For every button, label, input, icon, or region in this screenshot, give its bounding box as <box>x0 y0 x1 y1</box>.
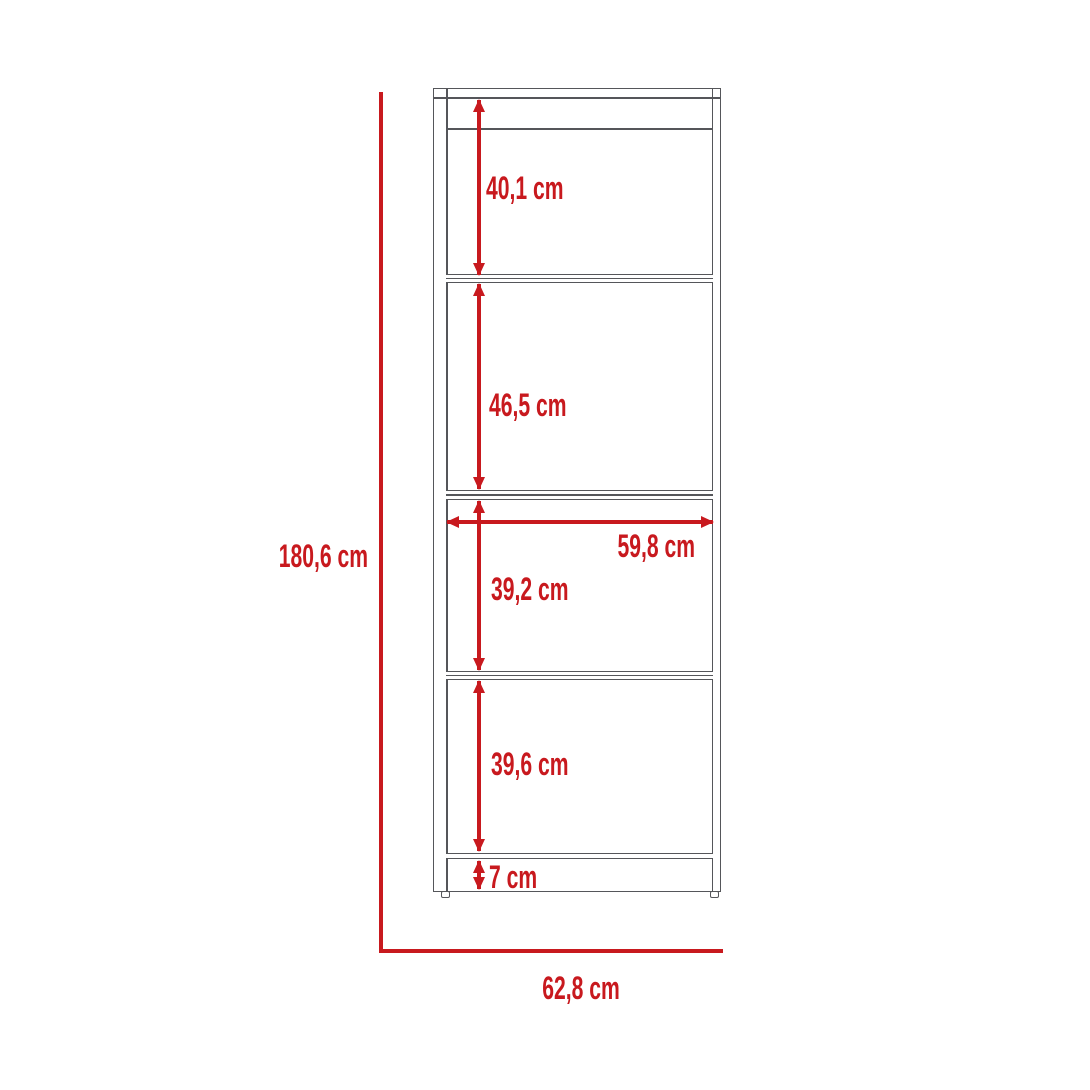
cabinet-foot-left <box>441 891 450 898</box>
overall-width-dimension-line <box>379 949 723 953</box>
top-rail-line <box>446 128 713 130</box>
bottom-panel <box>446 853 713 859</box>
base-height-dimension-arrow <box>477 861 481 889</box>
inner-width-dimension-label: 59,8 cm <box>603 530 695 562</box>
section-1-dimension-arrow <box>477 100 481 275</box>
base-height-dimension-label: 7 cm <box>489 861 537 893</box>
shelf-2 <box>446 490 713 500</box>
section-1-dimension-label: 40,1 cm <box>486 172 563 204</box>
overall-height-dimension-label: 180,6 cm <box>276 540 368 572</box>
cabinet-foot-right <box>710 891 719 898</box>
shelf-3 <box>446 671 713 680</box>
inner-width-dimension-arrow <box>447 520 713 524</box>
overall-height-dimension-line <box>379 92 383 953</box>
shelf-1 <box>446 274 713 283</box>
dimension-diagram-canvas: 40,1 cm 46,5 cm 59,8 cm 39,2 cm 39,6 cm … <box>0 0 1090 1090</box>
section-3-dimension-label: 39,2 cm <box>491 573 568 605</box>
section-4-dimension-arrow <box>477 681 481 851</box>
section-2-dimension-label: 46,5 cm <box>489 389 566 421</box>
section-4-dimension-label: 39,6 cm <box>491 748 568 780</box>
overall-width-dimension-label: 62,8 cm <box>535 972 627 1004</box>
section-2-dimension-arrow <box>477 284 481 489</box>
section-3-dimension-arrow <box>477 501 481 670</box>
